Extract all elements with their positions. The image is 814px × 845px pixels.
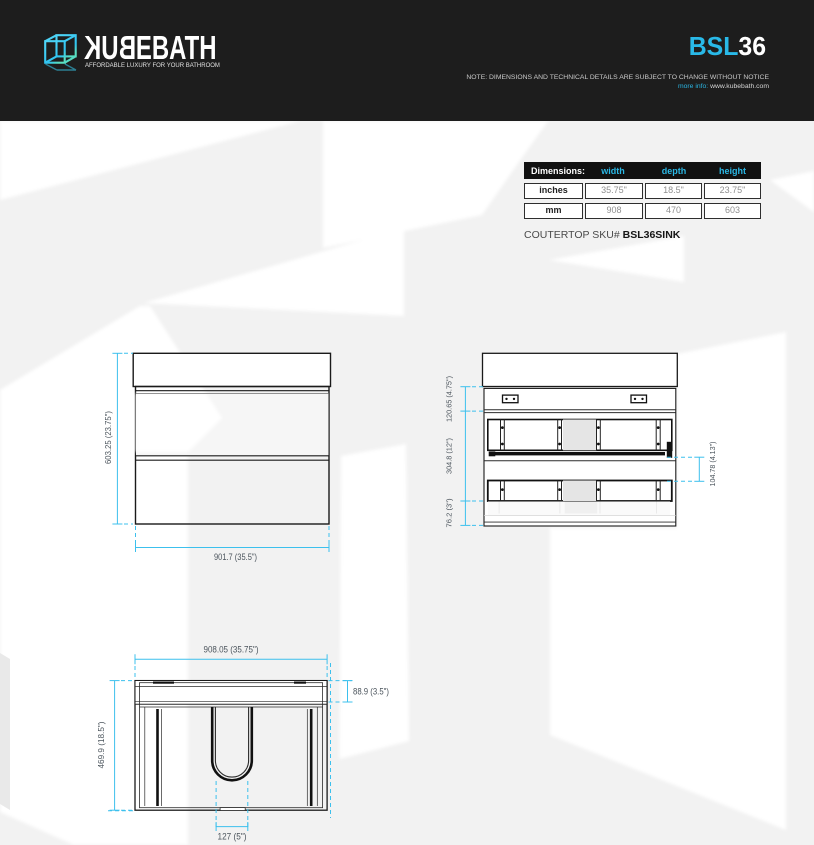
svg-text:901.7 (35.5"): 901.7 (35.5"): [214, 552, 257, 562]
svg-text:304.8 (12"): 304.8 (12"): [445, 438, 454, 474]
svg-text:76.2 (3"): 76.2 (3"): [445, 498, 454, 528]
svg-text:469.9 (18.5"): 469.9 (18.5"): [97, 721, 106, 768]
svg-text:127 (5"): 127 (5"): [218, 832, 247, 842]
svg-text:104.78 (4.13"): 104.78 (4.13"): [708, 441, 717, 486]
svg-text:120.65 (4.75"): 120.65 (4.75"): [445, 376, 454, 422]
svg-text:603.25 (23.75"): 603.25 (23.75"): [104, 411, 113, 464]
svg-text:908.05 (35.75"): 908.05 (35.75"): [204, 645, 259, 655]
svg-text:88.9 (3.5"): 88.9 (3.5"): [353, 687, 389, 697]
